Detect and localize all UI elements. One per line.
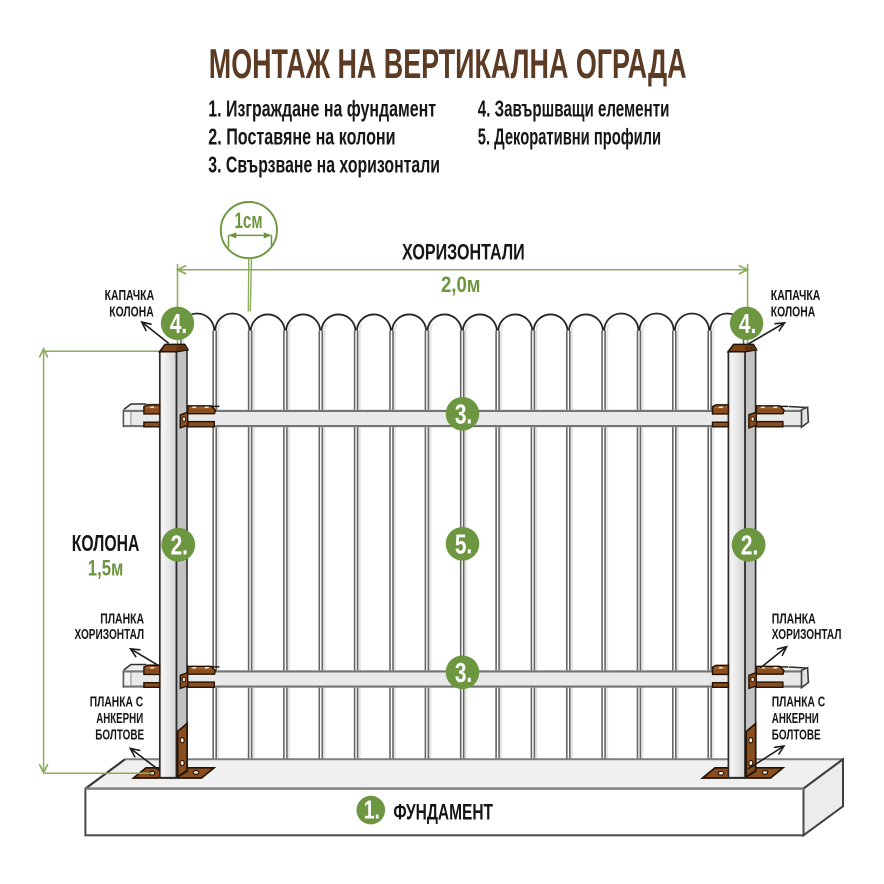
svg-text:4.: 4. (739, 308, 756, 339)
svg-text:ФУНДАМЕНТ: ФУНДАМЕНТ (393, 799, 493, 824)
svg-text:ПЛАНКА: ПЛАНКА (100, 612, 144, 628)
svg-text:1.: 1. (364, 794, 380, 824)
svg-text:ПЛАНКА С: ПЛАНКА С (772, 695, 825, 711)
svg-text:ПЛАНКА: ПЛАНКА (772, 612, 816, 628)
svg-text:5.: 5. (455, 529, 472, 560)
svg-text:КОЛОНА: КОЛОНА (771, 304, 815, 320)
svg-text:АНКЕРНИ: АНКЕРНИ (96, 711, 143, 727)
svg-text:КОЛОНА: КОЛОНА (109, 304, 153, 320)
svg-text:4. Завършващи елементи: 4. Завършващи елементи (478, 96, 670, 122)
svg-text:БОЛТОВЕ: БОЛТОВЕ (772, 728, 821, 744)
svg-text:КАПАЧКА: КАПАЧКА (105, 288, 155, 304)
svg-text:КАПАЧКА: КАПАЧКА (771, 288, 821, 304)
svg-text:5. Декоративни профили: 5. Декоративни профили (478, 123, 661, 149)
svg-text:1. Изграждане на фундамент: 1. Изграждане на фундамент (208, 96, 436, 122)
svg-text:МОНТАЖ НА ВЕРТИКАЛНА ОГРАДА: МОНТАЖ НА ВЕРТИКАЛНА ОГРАДА (209, 41, 687, 87)
svg-text:1,5м: 1,5м (88, 556, 124, 581)
svg-text:ХОРИЗОНТАЛИ: ХОРИЗОНТАЛИ (402, 240, 525, 265)
svg-text:2. Поставяне на колони: 2. Поставяне на колони (208, 123, 395, 149)
svg-text:ХОРИЗОНТАЛ: ХОРИЗОНТАЛ (772, 627, 842, 643)
svg-text:2.: 2. (741, 530, 758, 561)
svg-text:ПЛАНКА С: ПЛАНКА С (90, 695, 143, 711)
svg-text:2.: 2. (171, 530, 188, 561)
svg-text:3. Свързване на хоризонтали: 3. Свързване на хоризонтали (208, 151, 440, 177)
svg-text:БОЛТОВЕ: БОЛТОВЕ (95, 728, 144, 744)
svg-text:4.: 4. (170, 308, 187, 339)
svg-text:АНКЕРНИ: АНКЕРНИ (772, 711, 819, 727)
svg-text:ХОРИЗОНТАЛ: ХОРИЗОНТАЛ (75, 627, 145, 643)
svg-text:3.: 3. (455, 399, 472, 430)
svg-text:КОЛОНА: КОЛОНА (72, 530, 140, 556)
svg-text:3.: 3. (455, 657, 472, 688)
svg-text:1см: 1см (235, 208, 263, 233)
svg-text:2,0м: 2,0м (441, 272, 481, 297)
